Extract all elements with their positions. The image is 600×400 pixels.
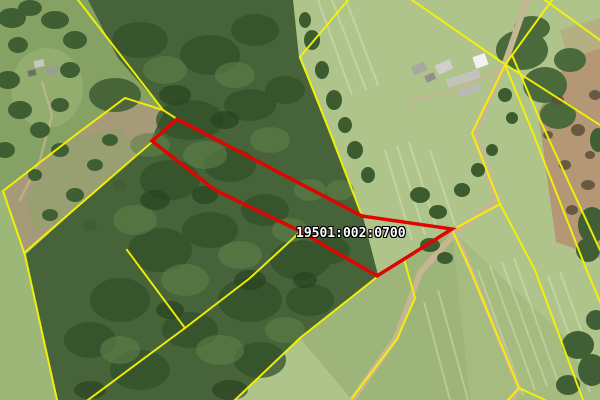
map-viewport[interactable]: 19501:002:0700 — [0, 0, 600, 400]
aerial-map — [0, 0, 600, 400]
